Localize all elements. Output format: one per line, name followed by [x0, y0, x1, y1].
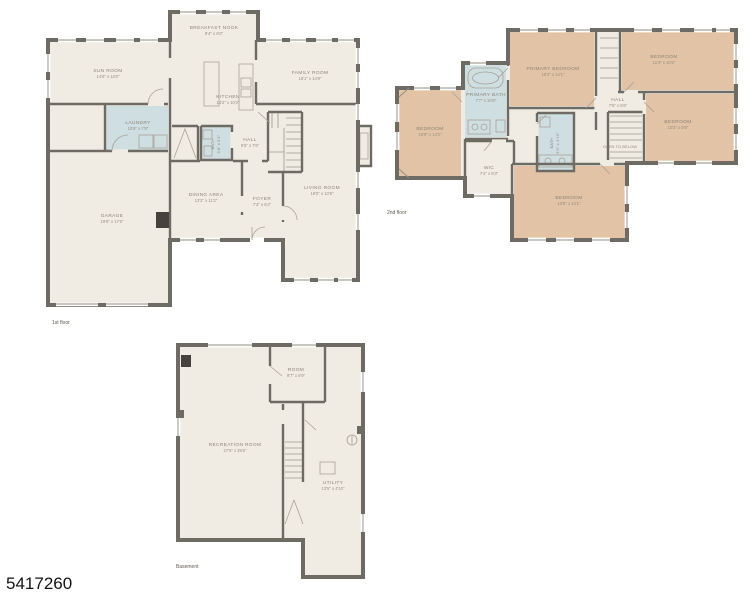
room-label-bath-1: BATH — [211, 139, 215, 150]
room-label-bath-2: BATH — [550, 138, 554, 149]
wall-pilaster — [178, 410, 184, 418]
room-dims-primary-bath: 7'7" x 10'6" — [476, 98, 497, 103]
floor-caption-first: 1st floor — [52, 320, 70, 326]
room-dims-bedroom-left: 15'6" x 14'2" — [419, 132, 442, 137]
room-dims-primary-bedroom: 16'4" x 14'1" — [542, 72, 565, 77]
room-label-open-to-below: OPEN TO BELOW — [603, 145, 638, 149]
room-dims-bedroom-bottom: 13'8" x 13'1" — [558, 201, 581, 206]
room-dims-dining-area: 13'2" x 11'2" — [195, 198, 218, 203]
room-dims-bedroom-topright: 11'4" x 10'6" — [653, 60, 676, 65]
basement-fireplace — [181, 355, 191, 367]
bedroom-right-fill — [646, 94, 734, 161]
wall-pilaster — [357, 426, 363, 434]
room-dims-sun-room: 14'6" x 13'0" — [97, 74, 120, 79]
room-dims-utility: 13'5" x 4'10" — [322, 486, 345, 491]
floor-caption-basement: Basement — [176, 564, 199, 570]
room-dims-laundry: 10'6" x 7'8" — [128, 126, 149, 131]
room-dims-living-room: 19'5" x 13'9" — [311, 191, 334, 196]
listing-id: 5417260 — [6, 574, 72, 593]
bedroom-topright-fill — [622, 32, 734, 90]
room-dims-family-room: 18'1" x 14'9" — [299, 76, 322, 81]
room-dims-foyer: 7'2" x 6'2" — [253, 202, 272, 207]
room-dims-bedroom-right: 10'2" x 9'8" — [668, 125, 689, 130]
room-dims-recreation-room: 27'5" x 25'5" — [224, 448, 247, 453]
floorplan-page: BREAKFAST NOOK 9'4" x 6'8" SUN ROOM 14'6… — [0, 0, 756, 600]
room-dims-bath-1: 6'8" x 5'2" — [217, 134, 221, 153]
floor-caption-second: 2nd floor — [387, 210, 407, 216]
room-dims-room: 9'7" x 8'9" — [287, 373, 306, 378]
room-dims-bath-2: 8'0" x 4'10" — [556, 132, 560, 154]
room-dims-hall-1: 9'6" x 7'6" — [241, 143, 260, 148]
room-dims-garage: 19'8" x 17'6" — [101, 219, 124, 224]
room-dims-kitchen: 14'2" x 10'2" — [217, 100, 240, 105]
floorplan-image: BREAKFAST NOOK 9'4" x 6'8" SUN ROOM 14'6… — [0, 0, 756, 600]
fireplace — [156, 212, 169, 228]
room-dims-wic: 7'4" x 6'3" — [480, 171, 499, 176]
room-dims-hall-2: 7'6" x 6'6" — [609, 103, 628, 108]
room-dims-breakfast-nook: 9'4" x 6'8" — [205, 31, 224, 36]
